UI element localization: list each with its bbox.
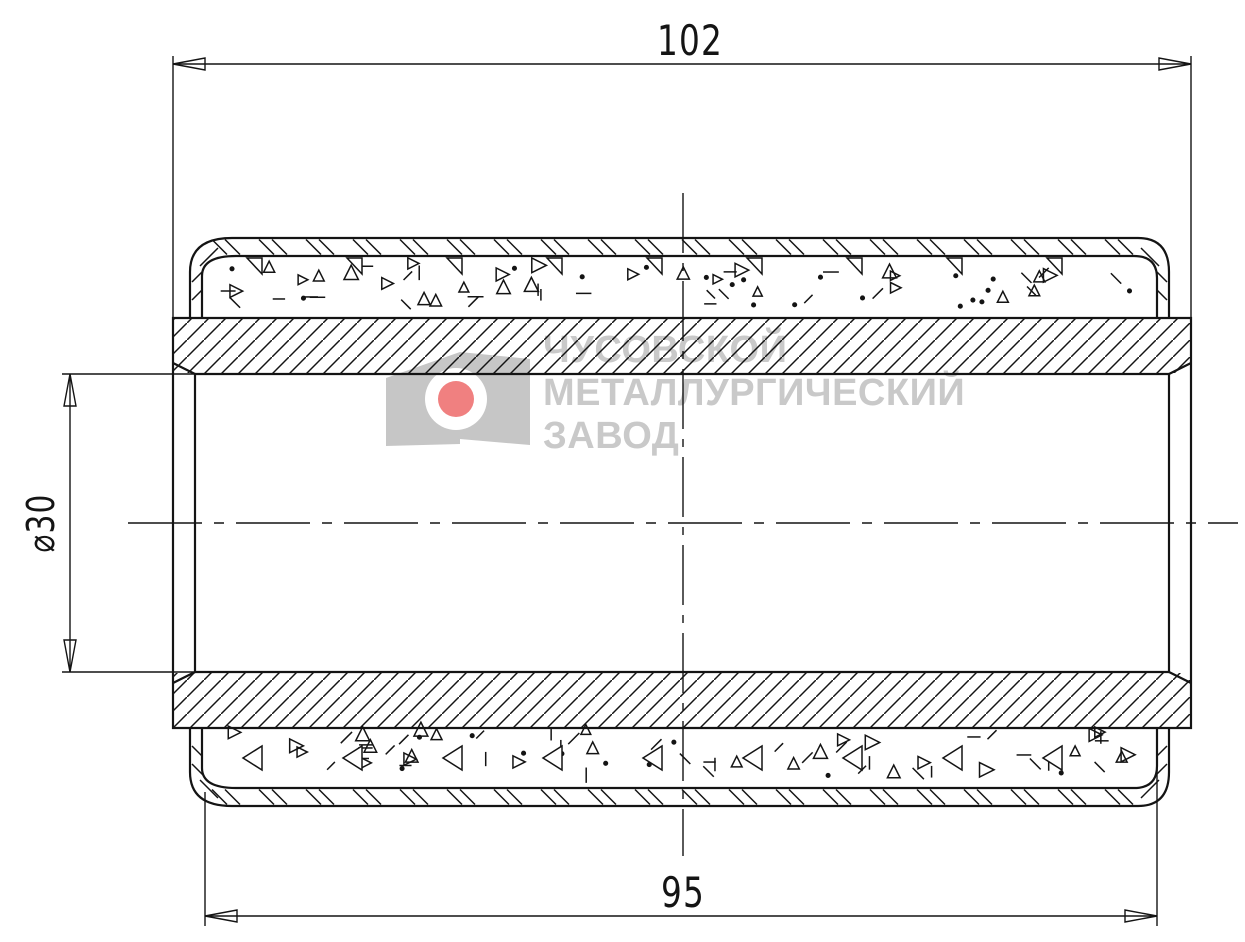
technical-drawing: 102 95 ⌀30 [0, 0, 1245, 942]
outer-shell-top [190, 238, 1169, 318]
outer-shell-top-hatch [192, 240, 1167, 301]
dim-value-102: 102 [657, 16, 723, 65]
dimension-shell-length: 95 [205, 758, 1157, 926]
outer-shell-top-inner-surface [202, 256, 1157, 318]
dim-value-95: 95 [661, 868, 705, 917]
outer-shell-bottom [190, 728, 1169, 806]
dim-value-d30: ⌀30 [19, 493, 64, 552]
centerlines [128, 193, 1238, 856]
inner-sleeve-top-hatch [173, 319, 1191, 373]
drawing-canvas: ЧУСОВСКОЙ МЕТАЛЛУРГИЧЕСКИЙ ЗАВОД [0, 0, 1245, 942]
rubber-bottom-speckle [228, 722, 1135, 783]
outer-shell-bottom-outer-surface [190, 728, 1169, 806]
inner-sleeve-bottom-hatch [173, 673, 1191, 727]
